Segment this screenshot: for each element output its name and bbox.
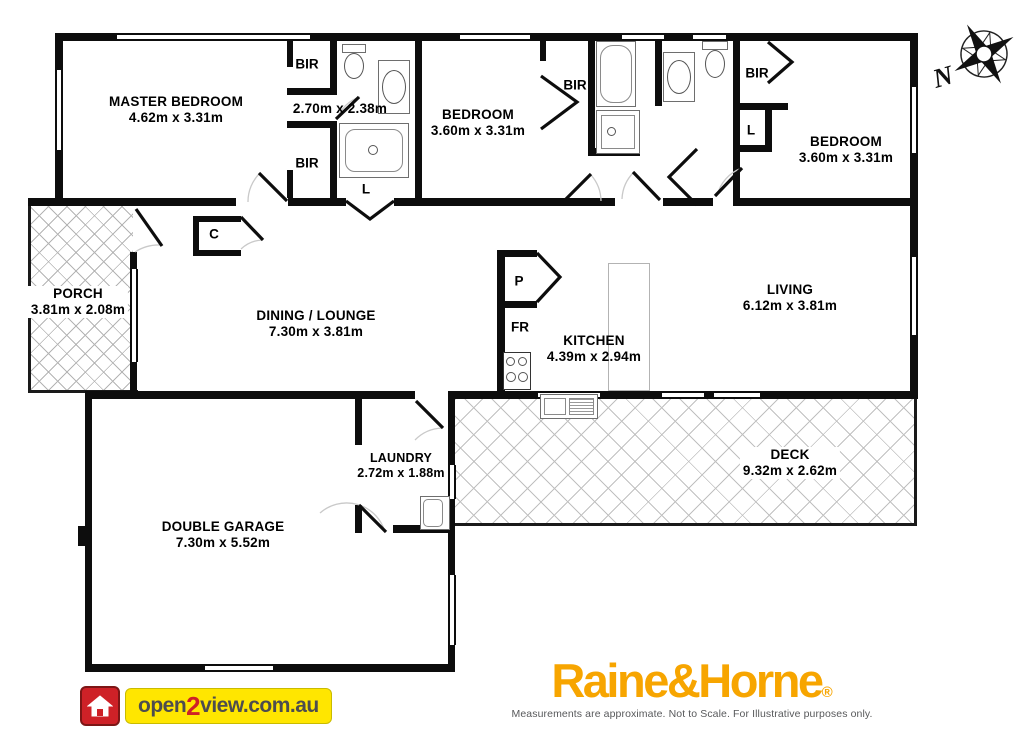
bir-label: BIR bbox=[563, 78, 586, 93]
room-dims: 7.30m x 5.52m bbox=[162, 535, 285, 551]
open2view-text-rest: view.com.au bbox=[200, 694, 319, 718]
floor-plan: MASTER BEDROOM 4.62m x 3.31m 2.70m x 2.3… bbox=[0, 0, 1024, 744]
room-label-garage: DOUBLE GARAGE 7.30m x 5.52m bbox=[162, 519, 285, 551]
door-leaf bbox=[715, 168, 742, 196]
room-name: LAUNDRY bbox=[357, 451, 444, 466]
room-name: PORCH bbox=[28, 286, 128, 302]
room-dims: 3.60m x 3.31m bbox=[799, 150, 893, 166]
door-leaf bbox=[136, 209, 162, 246]
compass-rose: N bbox=[932, 14, 1024, 100]
linen-label: L bbox=[362, 182, 370, 197]
room-dims: 2.70m x 2.38m bbox=[293, 101, 387, 117]
raine-horne-wordmark: Raine&Horne® bbox=[462, 656, 922, 705]
raine-horne-name: Raine&Horne bbox=[551, 654, 821, 707]
room-name: BEDROOM bbox=[431, 107, 525, 123]
room-name: BEDROOM bbox=[799, 134, 893, 150]
fridge-label: FR bbox=[511, 320, 529, 335]
room-label-bedroom2: BEDROOM 3.60m x 3.31m bbox=[431, 107, 525, 139]
door-arc bbox=[622, 172, 634, 199]
room-label-laundry: LAUNDRY 2.72m x 1.88m bbox=[357, 451, 444, 481]
room-dims: 7.30m x 3.81m bbox=[256, 324, 375, 340]
door-arc bbox=[241, 240, 262, 249]
bifold-door bbox=[768, 42, 792, 83]
room-name: KITCHEN bbox=[547, 333, 641, 349]
room-label-living: LIVING 6.12m x 3.81m bbox=[743, 282, 837, 314]
door-leaf bbox=[359, 505, 386, 532]
door-arc bbox=[415, 428, 442, 440]
door-leaf bbox=[633, 172, 660, 200]
room-name: MASTER BEDROOM bbox=[109, 94, 243, 110]
room-name: DECK bbox=[740, 447, 840, 463]
door-arc bbox=[591, 175, 601, 201]
disclaimer-text: Measurements are approximate. Not to Sca… bbox=[462, 708, 922, 720]
pantry-label: P bbox=[514, 274, 523, 289]
linen-label: L bbox=[747, 123, 755, 138]
room-label-dining-lounge: DINING / LOUNGE 7.30m x 3.81m bbox=[256, 308, 375, 340]
cupboard-label: C bbox=[209, 227, 219, 242]
room-label-master-bedroom: MASTER BEDROOM 4.62m x 3.31m bbox=[109, 94, 243, 126]
raine-horne-logo: Raine&Horne® Measurements are approximat… bbox=[462, 656, 922, 720]
house-icon bbox=[80, 686, 120, 726]
bifold-door bbox=[537, 253, 560, 302]
room-label-porch: PORCH 3.81m x 2.08m bbox=[28, 286, 128, 318]
room-dims: 6.12m x 3.81m bbox=[743, 298, 837, 314]
room-name: DOUBLE GARAGE bbox=[162, 519, 285, 535]
door-arc bbox=[135, 245, 161, 252]
bifold-door bbox=[669, 149, 697, 205]
door-arc bbox=[248, 173, 260, 202]
ensuite-dims-label: 2.70m x 2.38m bbox=[293, 101, 387, 117]
open2view-logo[interactable]: open2view.com.au bbox=[80, 686, 332, 726]
room-dims: 4.62m x 3.31m bbox=[109, 110, 243, 126]
open2view-text-2: 2 bbox=[186, 691, 200, 722]
compass-north-label: N bbox=[932, 59, 958, 94]
room-dims: 3.81m x 2.08m bbox=[28, 302, 128, 318]
open2view-wordmark: open2view.com.au bbox=[125, 688, 332, 724]
door-leaf bbox=[241, 217, 263, 240]
bir-label: BIR bbox=[745, 66, 768, 81]
bir-label: BIR bbox=[295, 156, 318, 171]
room-name: DINING / LOUNGE bbox=[256, 308, 375, 324]
room-dims: 2.72m x 1.88m bbox=[357, 466, 444, 481]
door-leaf bbox=[416, 401, 443, 428]
room-label-kitchen: KITCHEN 4.39m x 2.94m bbox=[547, 333, 641, 365]
door-leaf bbox=[259, 173, 287, 201]
door-leaf bbox=[563, 174, 591, 202]
room-dims: 3.60m x 3.31m bbox=[431, 123, 525, 139]
registered-mark: ® bbox=[822, 684, 833, 701]
room-label-bedroom3: BEDROOM 3.60m x 3.31m bbox=[799, 134, 893, 166]
bifold-door bbox=[346, 201, 394, 219]
door-arc bbox=[320, 503, 385, 532]
room-dims: 4.39m x 2.94m bbox=[547, 349, 641, 365]
room-name: LIVING bbox=[743, 282, 837, 298]
room-dims: 9.32m x 2.62m bbox=[740, 463, 840, 479]
bir-label: BIR bbox=[295, 57, 318, 72]
open2view-text-open: open bbox=[138, 694, 186, 718]
room-label-deck: DECK 9.32m x 2.62m bbox=[740, 447, 840, 479]
